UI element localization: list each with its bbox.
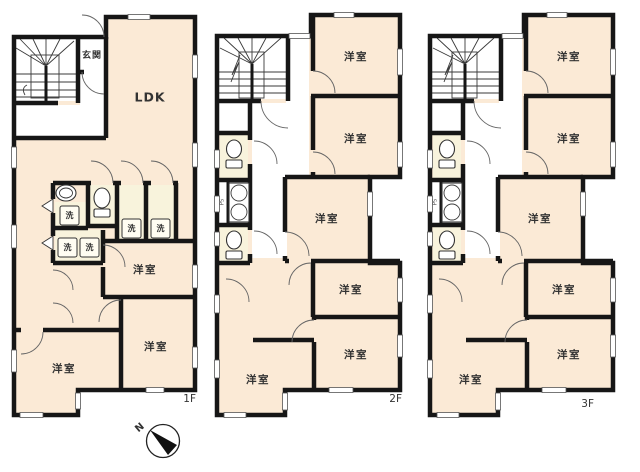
wash-label: 洗 — [86, 242, 94, 252]
floor2-plan: PS 洋室 洋室 洋室 洋室 洋室 洋室 2F — [215, 13, 403, 418]
entrance-label: 玄関 — [82, 49, 102, 61]
wash-label: 洗 — [64, 242, 72, 252]
pipe-space-label: PS — [433, 198, 439, 205]
floor-plan-canvas: 玄関 LDK 洗 洗 洗 洗 洗 洋室 洋室 洋室 1F PS 洋室 洋室 洋室… — [0, 0, 640, 472]
floor1-plan: 玄関 LDK 洗 洗 洗 洗 洗 洋室 洋室 洋室 1F — [12, 15, 198, 418]
room-label: 洋室 — [339, 283, 363, 296]
room-label: 洋室 — [344, 348, 368, 361]
room-label: 洋室 — [246, 373, 270, 386]
ldk-label: LDK — [134, 90, 165, 105]
wash-label: 洗 — [128, 223, 136, 233]
wash-label: 洗 — [157, 223, 165, 233]
floor-plan-drawing: 玄関 LDK 洗 洗 洗 洗 洗 洋室 洋室 洋室 1F PS 洋室 洋室 洋室… — [0, 0, 640, 472]
floor-tag: 1F — [183, 393, 196, 405]
room-label: 洋室 — [344, 50, 368, 63]
north-compass: N — [133, 421, 179, 457]
room-label: 洋室 — [557, 50, 581, 63]
room-label: 洋室 — [552, 283, 576, 296]
room-label: 洋室 — [528, 212, 552, 225]
room-label: 洋室 — [344, 132, 368, 145]
toilet-icon — [94, 188, 110, 217]
floor3-plan: PS 洋室 洋室 洋室 洋室 洋室 洋室 3F — [428, 13, 616, 418]
floor-tag: 3F — [581, 398, 594, 410]
north-label: N — [133, 421, 146, 435]
room-label: 洋室 — [133, 263, 157, 276]
room-label: 洋室 — [557, 348, 581, 361]
floor-tag: 2F — [389, 393, 402, 405]
room-label: 洋室 — [315, 212, 339, 225]
sink-icon — [56, 185, 76, 201]
wash-label: 洗 — [66, 210, 74, 220]
room-label: 洋室 — [144, 340, 168, 353]
pipe-space-label: PS — [220, 198, 226, 205]
room-label: 洋室 — [52, 362, 76, 375]
room-label: 洋室 — [459, 373, 483, 386]
room-label: 洋室 — [557, 132, 581, 145]
